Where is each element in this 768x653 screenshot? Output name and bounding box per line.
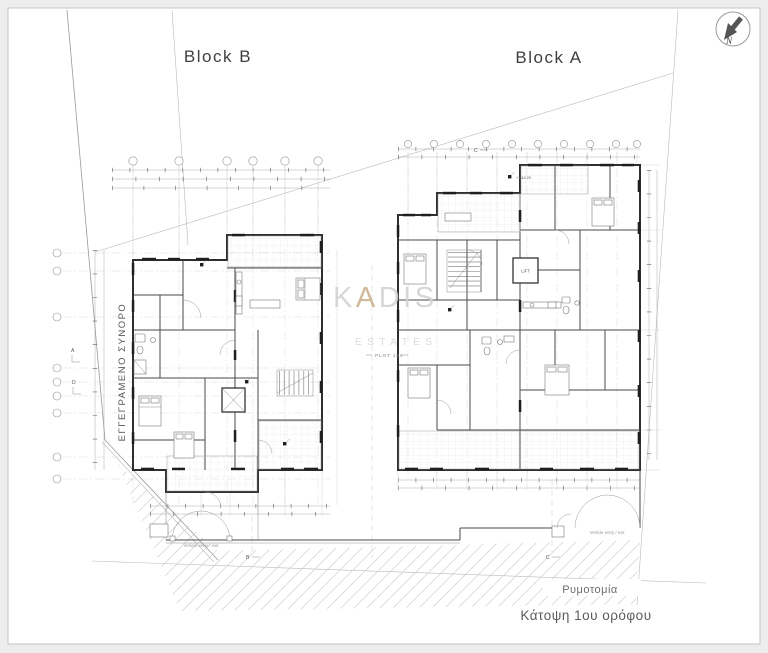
- section-marker-c-bottom: C: [546, 555, 550, 561]
- watermark-line2: ESTATES: [355, 337, 438, 348]
- level-mark-label: +1.44.20: [516, 176, 531, 180]
- north-arrow-icon: N: [716, 12, 750, 46]
- site-plan-canvas: LIFT +1.44.20: [0, 0, 768, 653]
- vehicle-entry-right-label: Vehicle entry / exit: [590, 530, 626, 535]
- north-letter: N: [725, 36, 733, 46]
- block-b-lift: [222, 388, 245, 412]
- block-a-title: Block A: [515, 48, 582, 67]
- watermark-line1: KADIS: [333, 282, 438, 314]
- section-marker-c-top: C: [474, 148, 478, 154]
- block-b-title: Block B: [184, 47, 252, 66]
- road-label: Ρυμοτομία: [562, 584, 618, 596]
- section-marker-d: D: [72, 380, 76, 386]
- lift-label: LIFT: [521, 269, 530, 274]
- boundary-label: ΕΓΓΕΓΡΑΜΕΝΟ ΣΥΝΟΡΟ: [117, 303, 128, 442]
- plot-label: PLOT 194: [375, 353, 403, 359]
- vehicle-entry-left-label: Vehicle entry / exit: [184, 543, 220, 548]
- block-a-lift: LIFT: [513, 258, 538, 283]
- drawing-caption: Κάτοψη 1ου ορόφου: [520, 608, 651, 623]
